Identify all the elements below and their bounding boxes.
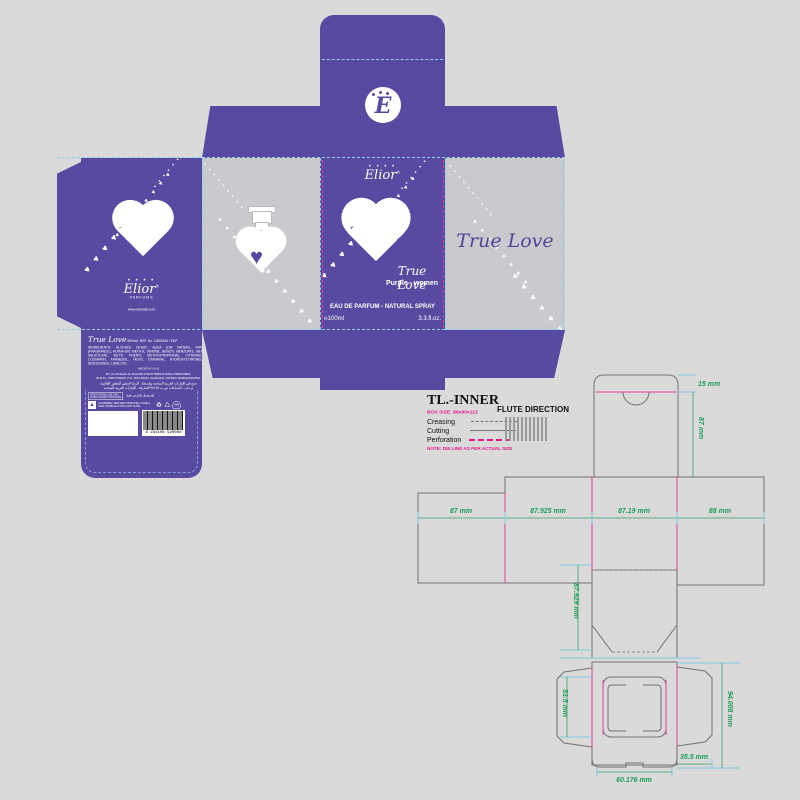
true-love-heart-logo: TRUE LOVE (336, 200, 416, 274)
design-canvas: E ♥ ♥ ♥ ♥ ♥ ♥ ♥ ♥ ♥ ♥ ♥ ♥ ♥ ♥ ♥ ♥ ♥ ♥ ♥ … (0, 0, 800, 800)
lock-tab-left (608, 685, 626, 731)
dim-flap: 87 mm (697, 417, 704, 439)
notice-arabic: للاستعمال الخارجي فقط (126, 394, 154, 397)
lock-bottom-tab (592, 747, 677, 767)
panel-front-artwork: ♥ ♥ ♥ ♥ ♥ ♥ ♥ ♥ ♥ ♥ ♥ ♥ ♥ ♥ ♥ ♥ ♥ ♥ ♥ ♥ … (320, 158, 445, 330)
panel3-outline (592, 477, 677, 570)
elior-reg: ® (396, 170, 400, 175)
dim-w2: 87.925 mm (530, 508, 566, 515)
flammable-text: FLAMMABLE: KEEP AWAY FROM FIRE, FLAME & … (99, 402, 154, 408)
dust-flap-line (592, 625, 612, 652)
ingredients-panel: True Love 80%vol. REF. No. 10001184 / ED… (81, 330, 202, 478)
lock-flap-right (677, 667, 712, 746)
crease-guide (322, 59, 443, 60)
producer-line2: (M.D.F) - INDUSTRIES, P.O. BOX 38134, SH… (88, 377, 202, 381)
fold-guide (57, 329, 565, 330)
dim-w3: 87.19 mm (618, 508, 650, 515)
monogram-badge: E (365, 87, 401, 123)
dim-top: 15 mm (698, 381, 720, 388)
top-flap-front: E (320, 15, 445, 158)
panel-side-artwork: ♥ ♥ ♥ ♥ ♥ ♥ ♥ ♥ ♥ ♥ ♥ ♥ ♥ ♥ ♥ ♥ ♥ ♥ ♥ ♥ … (445, 158, 565, 330)
back-ref-line: 80%vol. REF. No. 10001184 / EDP (127, 340, 177, 344)
front-type-line: EAU DE PARFUM - NATURAL SPRAY (320, 304, 445, 310)
front-floz: 3.3.fl.oz. (418, 316, 441, 322)
fold-guide (445, 158, 446, 330)
perforation-guide (443, 160, 444, 328)
side-product-name: True Love (445, 230, 565, 252)
dust-flap-line (657, 625, 677, 652)
panel4-outline (677, 477, 764, 585)
perforation-guide (322, 160, 323, 328)
lock-tab-right (643, 685, 661, 731)
dim-lock-left: 53.5 mm (561, 689, 568, 717)
recycle-icon: ♻ (156, 401, 162, 409)
dim-leg: 87.929 mm (572, 583, 579, 619)
dim-lock-right: 94.008 mm (726, 691, 733, 727)
tuck-flap-outline (594, 375, 678, 477)
barcode-digits: 6 291108 920068 (142, 430, 185, 435)
top-flap-side (445, 106, 565, 158)
flammable-icon: ▲ (88, 401, 96, 409)
elior-name: Elior (124, 282, 156, 297)
top-flap-bottle (202, 106, 320, 158)
heart-word-bottom: LOVE (109, 222, 182, 258)
made-in: MADE IN U.A.E (88, 368, 202, 372)
fold-guide (320, 158, 321, 330)
dim-w4: 88 mm (709, 508, 731, 515)
blank-label-box (88, 411, 138, 436)
elior-logo: • • • • Elior® (320, 166, 445, 182)
elior-reg: ® (155, 284, 159, 289)
green-dot-icon: ♺ (164, 401, 170, 409)
bottle-heart-icon: ♥ (250, 244, 263, 270)
panel-bottle-artwork: ♥ ♥ ♥ ♥ ♥ ♥ ♥ ♥ ♥ ♥ ♥ ♥ ♥ ♥ ♥ ♥ ♥ ♥ ♥ ♥ … (202, 158, 320, 330)
monogram-letter: E (375, 93, 392, 119)
dim-lock-gap: 35.5 mm (680, 754, 708, 761)
front-variant: Purple - women (382, 280, 442, 287)
elior-name: Elior (365, 168, 397, 183)
fold-guide (563, 160, 564, 328)
producer-line1: BY: AL RASHAA AL DAHABI FOR INTERNATIONA… (88, 373, 202, 377)
front-product-name: True Love (382, 264, 442, 292)
fold-guide (57, 157, 565, 158)
arabic-line2: م.د.ف - الصناعات ص.ب ٣٨١٣٤ الشارقة - الإ… (88, 387, 202, 391)
panel1-outline (418, 493, 505, 583)
back-product-name: True Love (88, 335, 126, 344)
front-volume: ℮100ml (324, 316, 344, 322)
heart-trail: ♥ ♥ ♥ ♥ ♥ ♥ (510, 272, 565, 330)
perfume-bottle-illustration: ♥ (232, 206, 290, 298)
pao-icon: 36M (173, 401, 181, 409)
bottom-flap-bottle (202, 330, 320, 378)
dim-w1: 87 mm (450, 508, 472, 515)
panel2-outline (505, 477, 592, 583)
notice-box: FOR EXTERNAL USE ONLYAVOID CONTACT WITH … (88, 392, 123, 400)
website-url: www.etewati.com (81, 308, 202, 312)
monogram-dots (372, 93, 375, 96)
glue-flap (57, 162, 81, 328)
panel-back-artwork: ♥ ♥ ♥ ♥ ♥ ♥ ♥ ♥ ♥ ♥ ♥ ♥ ♥ ♥ ♥ ♥ ♥ ♥ ♥ ♥ … (81, 158, 202, 330)
dim-lock-bottom: 60.176 mm (616, 777, 652, 784)
heart-trail: ♥ ♥ ♥ ♥ ♥ ♥ ♥ ♥ ♥ ♥ (448, 165, 494, 219)
elior-sub: PARFUMS (111, 296, 172, 300)
fold-guide (202, 158, 203, 330)
technical-dieline: 15 mm 87 mm 87 mm 87.925 mm 87.19 mm 88 … (400, 355, 800, 800)
elior-logo: • • • • Elior® PARFUMS (81, 280, 202, 303)
true-love-heart-logo: TRUE LOVE (107, 202, 179, 268)
heart-trail: ♥ ♥ ♥ ♥ ♥ ♥ ♥ ♥ ♥ (203, 163, 245, 212)
lock-cutout (603, 677, 666, 737)
thumb-notch (623, 392, 649, 405)
barcode: 6 291108 920068 (142, 410, 185, 436)
ingredients-text: INGREDIENTS: ALCOHOL DENAT, AQUA (DM WAT… (88, 346, 202, 366)
heart-trail: ♥ ♥ ♥ ♥ ♥ ♥ ♥ ♥ ♥ (154, 158, 196, 189)
